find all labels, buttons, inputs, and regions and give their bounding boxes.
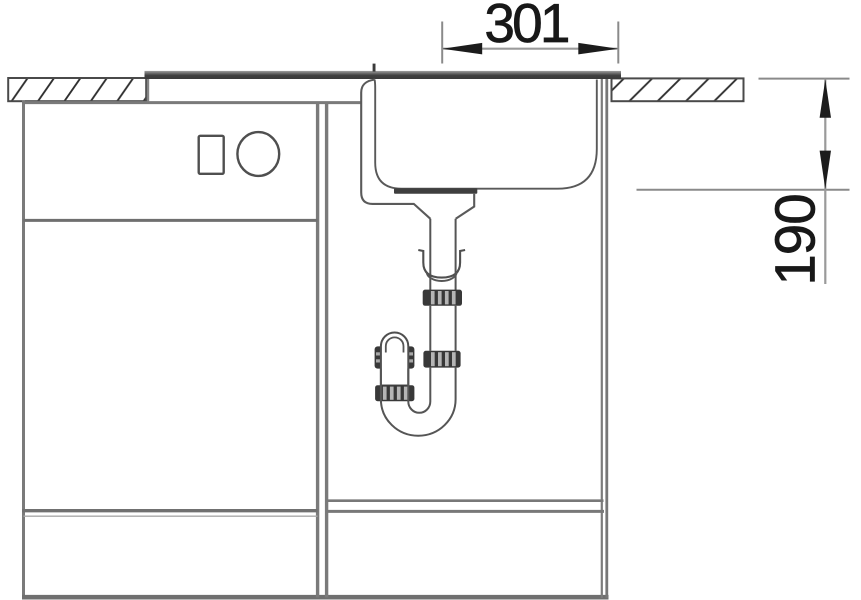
svg-text:190: 190 — [764, 194, 827, 285]
svg-text:301: 301 — [484, 0, 568, 54]
